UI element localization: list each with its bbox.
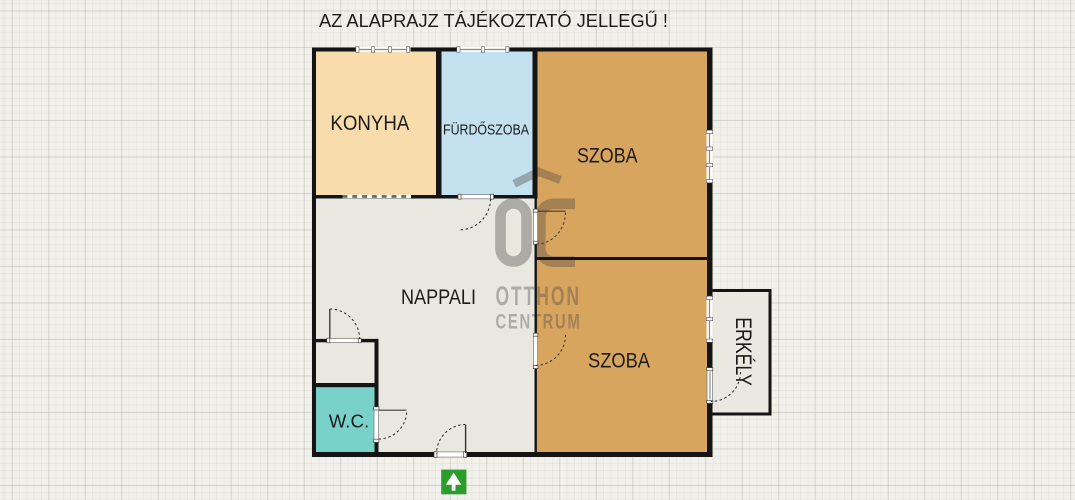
svg-text:SZOBA: SZOBA xyxy=(588,349,650,372)
svg-text:ERKÉLY: ERKÉLY xyxy=(731,317,756,386)
svg-text:NAPPALI: NAPPALI xyxy=(401,285,476,309)
svg-text:SZOBA: SZOBA xyxy=(577,144,638,167)
svg-text:KONYHA: KONYHA xyxy=(330,112,409,135)
svg-text:W.C.: W.C. xyxy=(329,410,370,431)
svg-text:OTTHON: OTTHON xyxy=(496,281,582,311)
svg-text:AZ ALAPRAJZ TÁJÉKOZTATÓ JELLEG: AZ ALAPRAJZ TÁJÉKOZTATÓ JELLEGŰ ! xyxy=(319,10,668,31)
svg-text:FÜRDŐSZOBA: FÜRDŐSZOBA xyxy=(443,120,529,138)
svg-text:CENTRUM: CENTRUM xyxy=(496,309,582,333)
